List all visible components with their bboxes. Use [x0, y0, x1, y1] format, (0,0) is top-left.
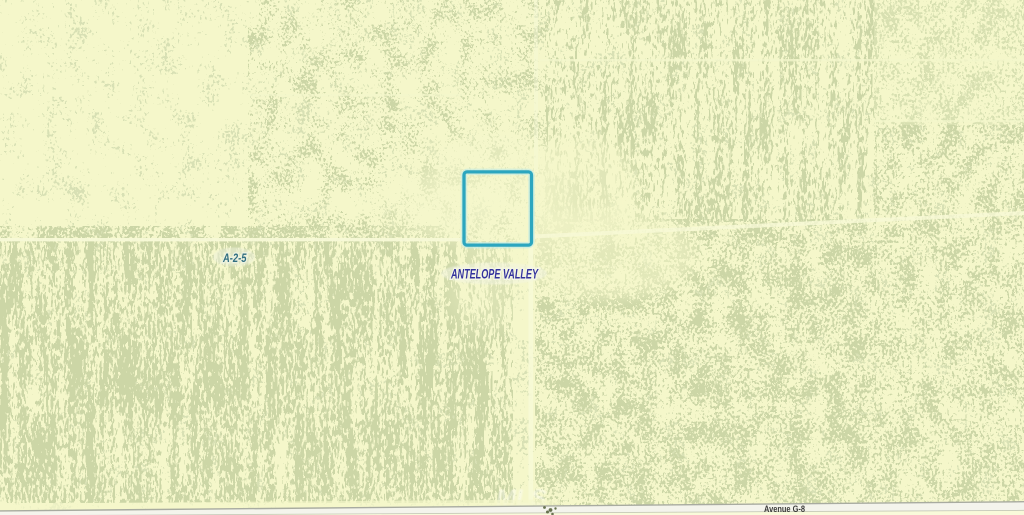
- svg-text:A-2-5: A-2-5: [222, 251, 247, 265]
- svg-text:ANTELOPE VALLEY: ANTELOPE VALLEY: [450, 267, 539, 282]
- svg-text:Avenue G-8: Avenue G-8: [764, 504, 805, 514]
